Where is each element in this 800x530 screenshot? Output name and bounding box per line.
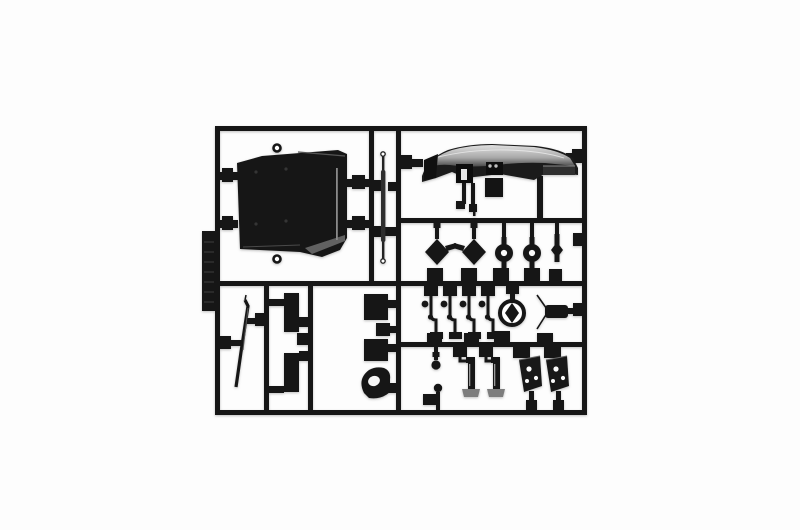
small-plate-2 (376, 323, 390, 336)
part-cab-floor-panel (220, 145, 369, 263)
product-photo-sprue (0, 0, 800, 530)
ball-joint-2 (423, 384, 442, 410)
parts-mud-flaps (269, 293, 309, 393)
pedal-1 (460, 357, 480, 397)
parts-axle-hubs (425, 223, 582, 281)
part-steering-wheel (500, 294, 524, 325)
sprue-photo-svg (0, 0, 800, 530)
part-wiper-arm (220, 295, 265, 387)
parts-small-plates-elbow (361, 294, 397, 398)
part-intake-elbow (361, 367, 396, 398)
parts-pedals-brackets (423, 347, 569, 411)
sprue-parts-tree (202, 126, 587, 415)
hub-round-1 (495, 237, 513, 269)
small-plate-1 (364, 294, 388, 320)
mud-flap-1 (284, 293, 299, 332)
hub-round-2 (523, 237, 541, 269)
small-plate-3 (364, 339, 388, 361)
ball-joint-1 (431, 347, 440, 370)
part-linkage-rod (374, 152, 396, 263)
shift-lever-1 (422, 296, 443, 339)
sprue-label-tab (202, 231, 216, 311)
hub-small (551, 234, 563, 262)
part-spindle (537, 295, 582, 329)
shift-lever-2 (441, 296, 462, 339)
bracket-plate-1 (519, 356, 542, 411)
pedal-2 (486, 357, 505, 397)
mud-flap-2 (284, 353, 299, 392)
ring-loop-bottom (274, 256, 281, 263)
parts-levers-steering (422, 286, 582, 342)
hub-diamond-2 (462, 239, 486, 265)
ring-loop-top (274, 145, 281, 152)
bracket-plate-2 (546, 356, 569, 411)
part-dashboard (401, 144, 582, 218)
hub-diamond-1 (425, 239, 449, 265)
shift-lever-3 (460, 296, 481, 339)
